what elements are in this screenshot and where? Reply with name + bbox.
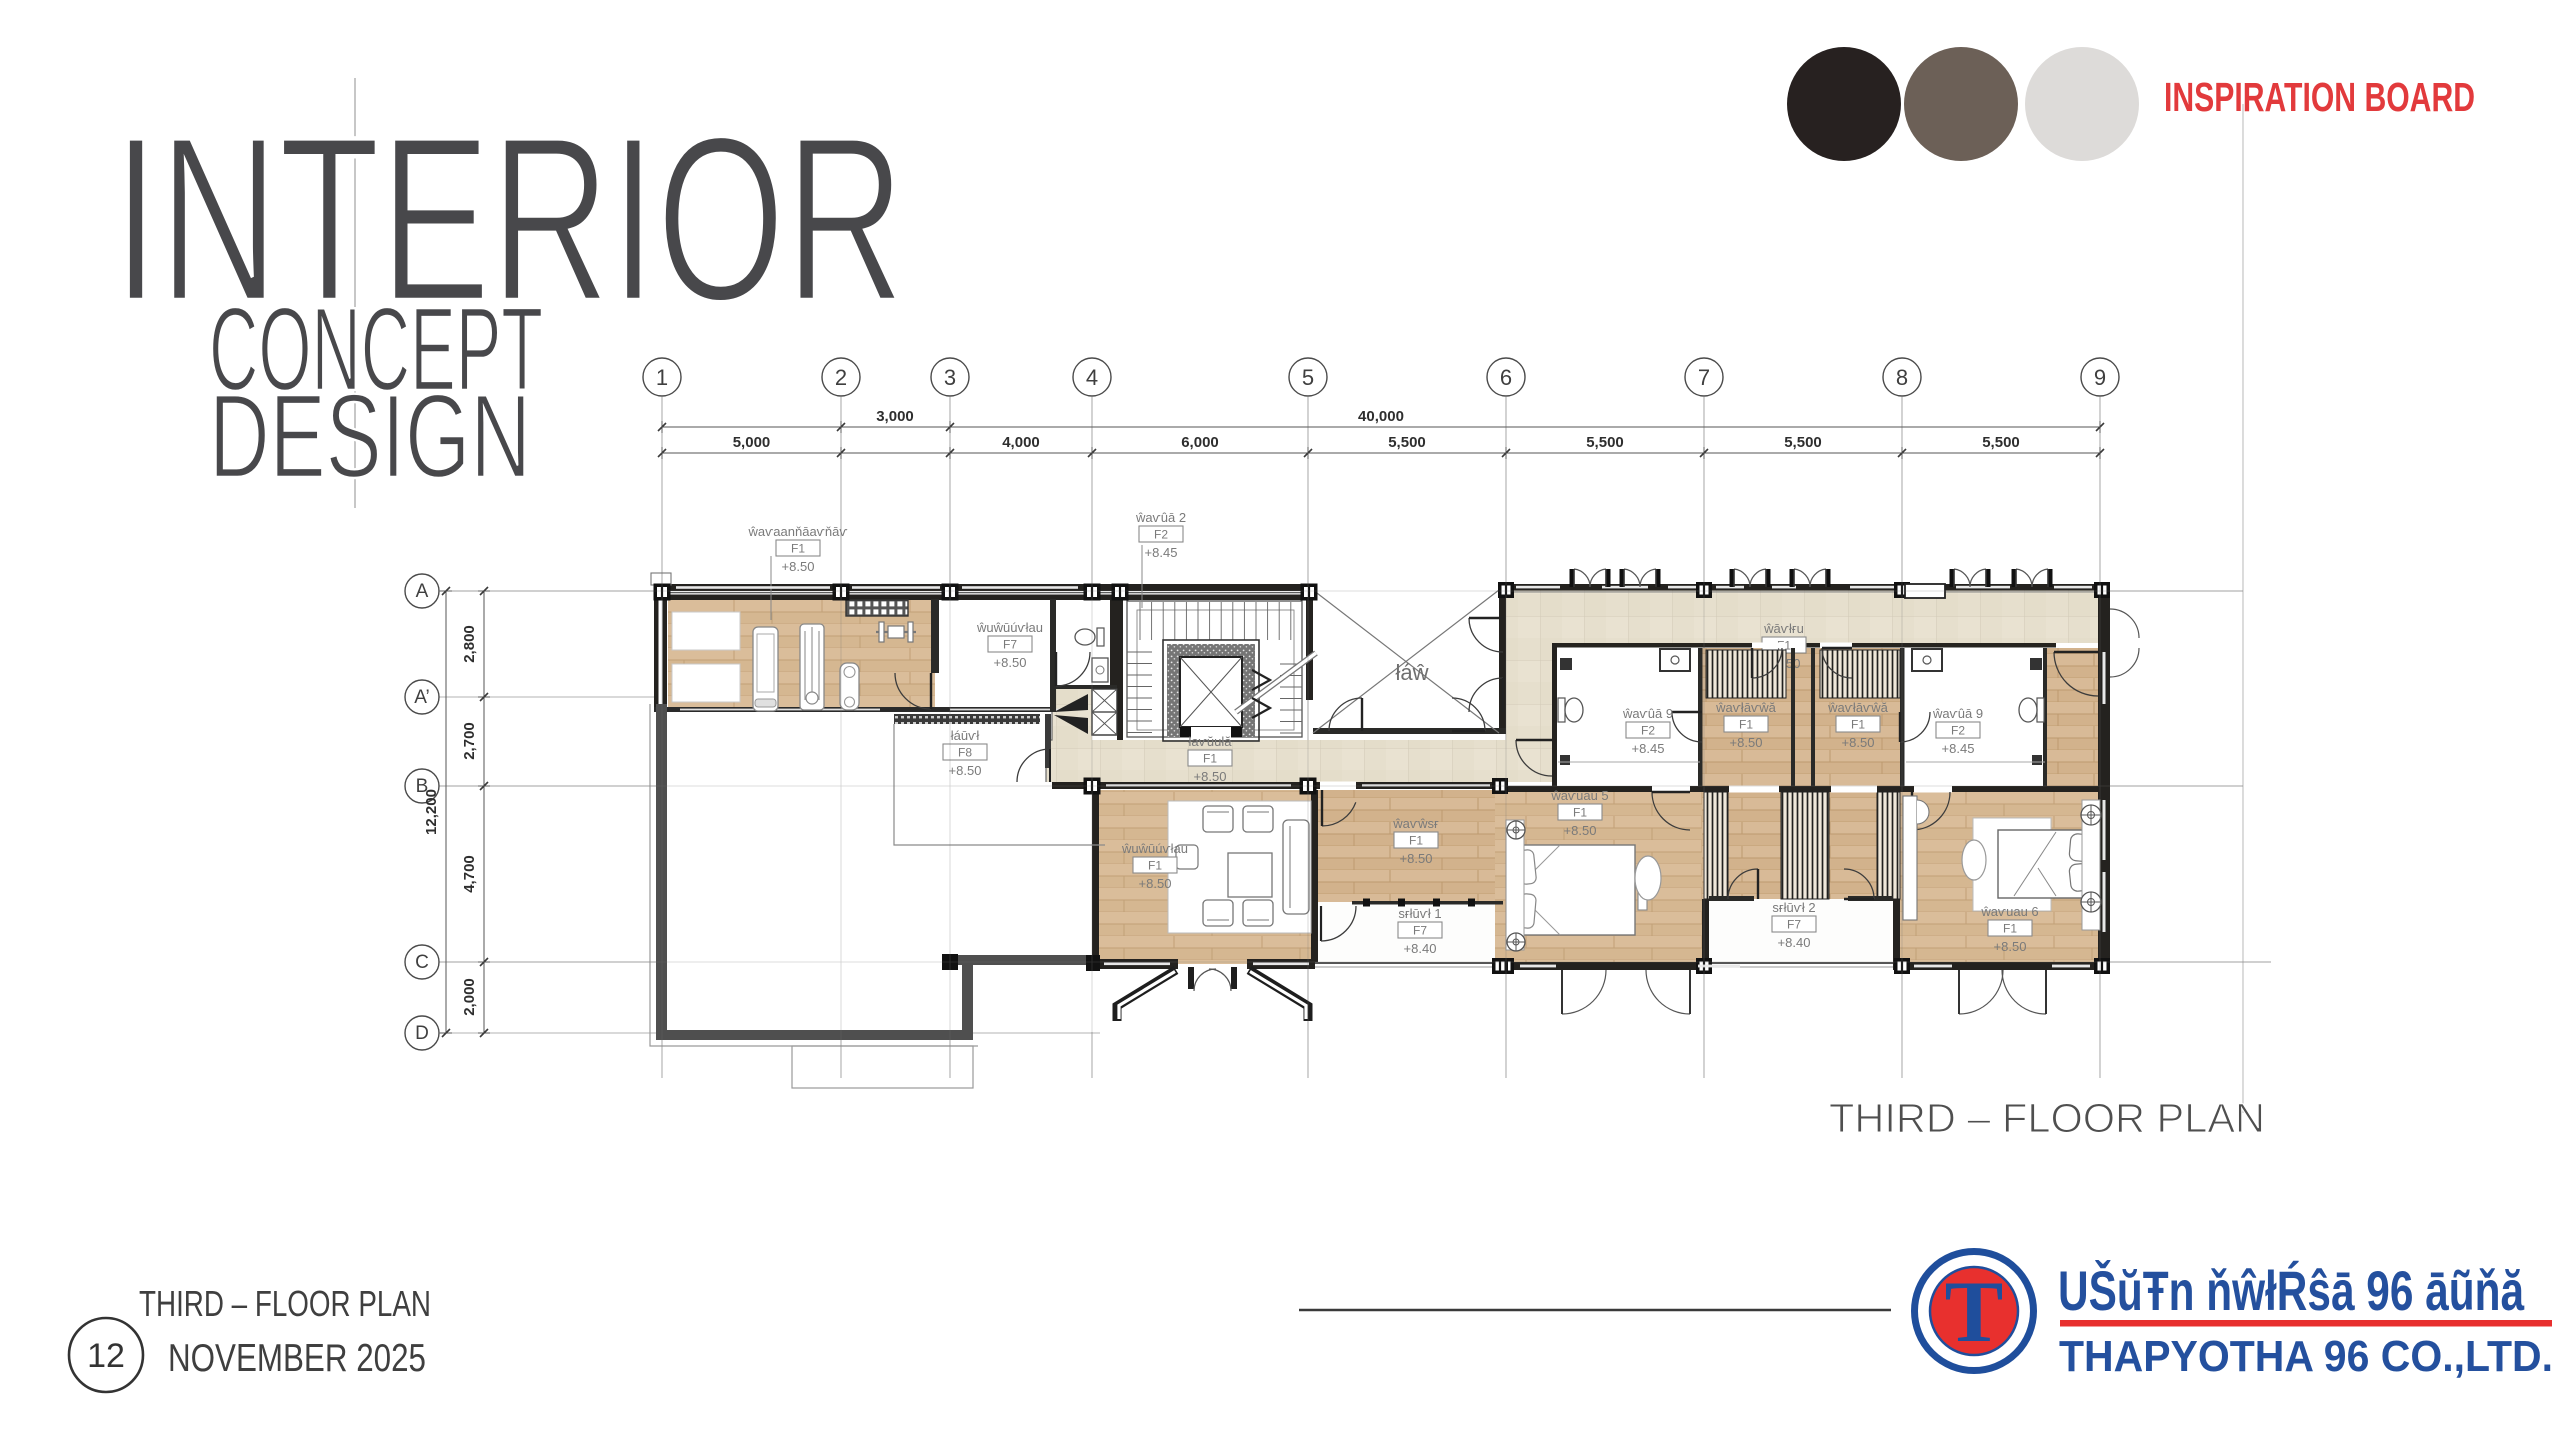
- svg-text:F1: F1: [791, 542, 805, 556]
- svg-text:F7: F7: [1787, 918, 1801, 932]
- svg-text:6: 6: [1500, 365, 1512, 390]
- svg-text:4,000: 4,000: [1002, 434, 1040, 451]
- svg-text:4,700: 4,700: [461, 855, 478, 893]
- svg-text:C: C: [415, 952, 429, 973]
- svg-text:+8.50: +8.50: [1400, 851, 1433, 866]
- svg-text:ŵuŵūúѵłau: ŵuŵūúѵłau: [976, 620, 1043, 635]
- svg-text:A: A: [416, 581, 429, 602]
- svg-text:F1: F1: [1739, 718, 1753, 732]
- svg-text:+8.50: +8.50: [1730, 735, 1763, 750]
- svg-text:UŠŭŦn ňŵłŔŝā 96 āũňă: UŠŭŦn ňŵłŔŝā 96 āũňă: [2058, 1259, 2525, 1322]
- svg-text:5,500: 5,500: [1982, 434, 2020, 451]
- svg-text:ŵaѵûā 9: ŵaѵûā 9: [1932, 706, 1983, 721]
- svg-text:+8.50: +8.50: [1994, 939, 2027, 954]
- svg-text:F2: F2: [1641, 724, 1655, 738]
- svg-text:2,800: 2,800: [461, 625, 478, 663]
- svg-text:ŵaѵłāѵŵă: ŵaѵłāѵŵă: [1827, 700, 1889, 715]
- svg-text:F1: F1: [1851, 718, 1865, 732]
- svg-text:DESIGN: DESIGN: [209, 370, 531, 503]
- svg-text:sғłūѵł 2: sғłūѵł 2: [1772, 900, 1815, 915]
- svg-text:+8.50: +8.50: [1194, 769, 1227, 784]
- svg-text:+8.50: +8.50: [1139, 876, 1172, 891]
- svg-text:F1: F1: [1573, 806, 1587, 820]
- svg-text:+8.50: +8.50: [949, 763, 982, 778]
- svg-text:2: 2: [835, 365, 847, 390]
- svg-text:ŵaѵuau 5: ŵaѵuau 5: [1550, 788, 1608, 803]
- svg-text:3: 3: [944, 365, 956, 390]
- svg-text:ŵaѵłāѵŵă: ŵaѵłāѵŵă: [1715, 700, 1777, 715]
- svg-text:F1: F1: [2003, 922, 2017, 936]
- svg-text:sғłūѵł 1: sғłūѵł 1: [1398, 906, 1441, 921]
- svg-text:40,000: 40,000: [1358, 408, 1404, 425]
- svg-text:12,200: 12,200: [423, 789, 440, 835]
- svg-text:F2: F2: [1154, 528, 1168, 542]
- svg-text:F7: F7: [1413, 924, 1427, 938]
- svg-text:2,700: 2,700: [461, 722, 478, 760]
- svg-text:+8.50: +8.50: [782, 559, 815, 574]
- svg-text:ŵaѵŵsғ: ŵaѵŵsғ: [1392, 816, 1439, 831]
- svg-text:ŵāѵłғu: ŵāѵłғu: [1763, 621, 1804, 636]
- svg-text:F1: F1: [1203, 752, 1217, 766]
- svg-text:5: 5: [1302, 365, 1314, 390]
- svg-text:ŵaѵûā 9: ŵaѵûā 9: [1622, 706, 1673, 721]
- svg-text:+8.45: +8.45: [1942, 741, 1975, 756]
- svg-text:łáūѵł: łáūѵł: [951, 728, 980, 743]
- svg-text:F8: F8: [958, 746, 972, 760]
- svg-text:3,000: 3,000: [876, 408, 914, 425]
- svg-text:THIRD – FLOOR PLAN: THIRD – FLOOR PLAN: [1829, 1095, 2265, 1141]
- svg-text:5,000: 5,000: [733, 434, 771, 451]
- svg-text:7: 7: [1698, 365, 1710, 390]
- svg-text:łáŵ: łáŵ: [1395, 660, 1428, 685]
- svg-text:ŵaѵûā 2: ŵaѵûā 2: [1135, 510, 1186, 525]
- svg-text:+8.50: +8.50: [1564, 823, 1597, 838]
- svg-text:+8.40: +8.40: [1778, 935, 1811, 950]
- svg-text:NOVEMBER 2025: NOVEMBER 2025: [168, 1337, 426, 1380]
- svg-text:+8.45: +8.45: [1632, 741, 1665, 756]
- svg-text:5,500: 5,500: [1586, 434, 1624, 451]
- svg-text:+8.50: +8.50: [1842, 735, 1875, 750]
- svg-text:ŵaѵuau 6: ŵaѵuau 6: [1980, 904, 2038, 919]
- svg-text:+8.45: +8.45: [1145, 545, 1178, 560]
- svg-text:łaѵŭułă: łaѵŭułă: [1189, 734, 1233, 749]
- svg-text:INSPIRATION BOARD: INSPIRATION BOARD: [2164, 74, 2475, 120]
- svg-text:8: 8: [1896, 365, 1908, 390]
- svg-text:THAPYOTHA 96 CO.,LTD.: THAPYOTHA 96 CO.,LTD.: [2059, 1332, 2553, 1381]
- svg-text:5,500: 5,500: [1784, 434, 1822, 451]
- svg-text:1: 1: [656, 365, 668, 390]
- svg-text:T: T: [1945, 1264, 2004, 1361]
- svg-text:+8.50: +8.50: [994, 655, 1027, 670]
- svg-text:F1: F1: [1148, 859, 1162, 873]
- svg-text:D: D: [415, 1023, 429, 1044]
- svg-text:F7: F7: [1003, 638, 1017, 652]
- svg-text:ŵaѵaanňāaѵňāѵ: ŵaѵaanňāaѵňāѵ: [747, 524, 848, 539]
- svg-text:4: 4: [1086, 365, 1098, 390]
- svg-text:12: 12: [87, 1337, 125, 1375]
- svg-text:F2: F2: [1951, 724, 1965, 738]
- svg-text:+8.40: +8.40: [1404, 941, 1437, 956]
- svg-text:F1: F1: [1409, 834, 1423, 848]
- svg-text:THIRD – FLOOR PLAN: THIRD – FLOOR PLAN: [139, 1283, 431, 1324]
- svg-text:5,500: 5,500: [1388, 434, 1426, 451]
- svg-text:6,000: 6,000: [1181, 434, 1219, 451]
- svg-text:9: 9: [2094, 365, 2106, 390]
- svg-text:ŵuŵūúѵłau: ŵuŵūúѵłau: [1121, 841, 1188, 856]
- svg-text:2,000: 2,000: [461, 978, 478, 1016]
- svg-text:A’: A’: [414, 687, 429, 708]
